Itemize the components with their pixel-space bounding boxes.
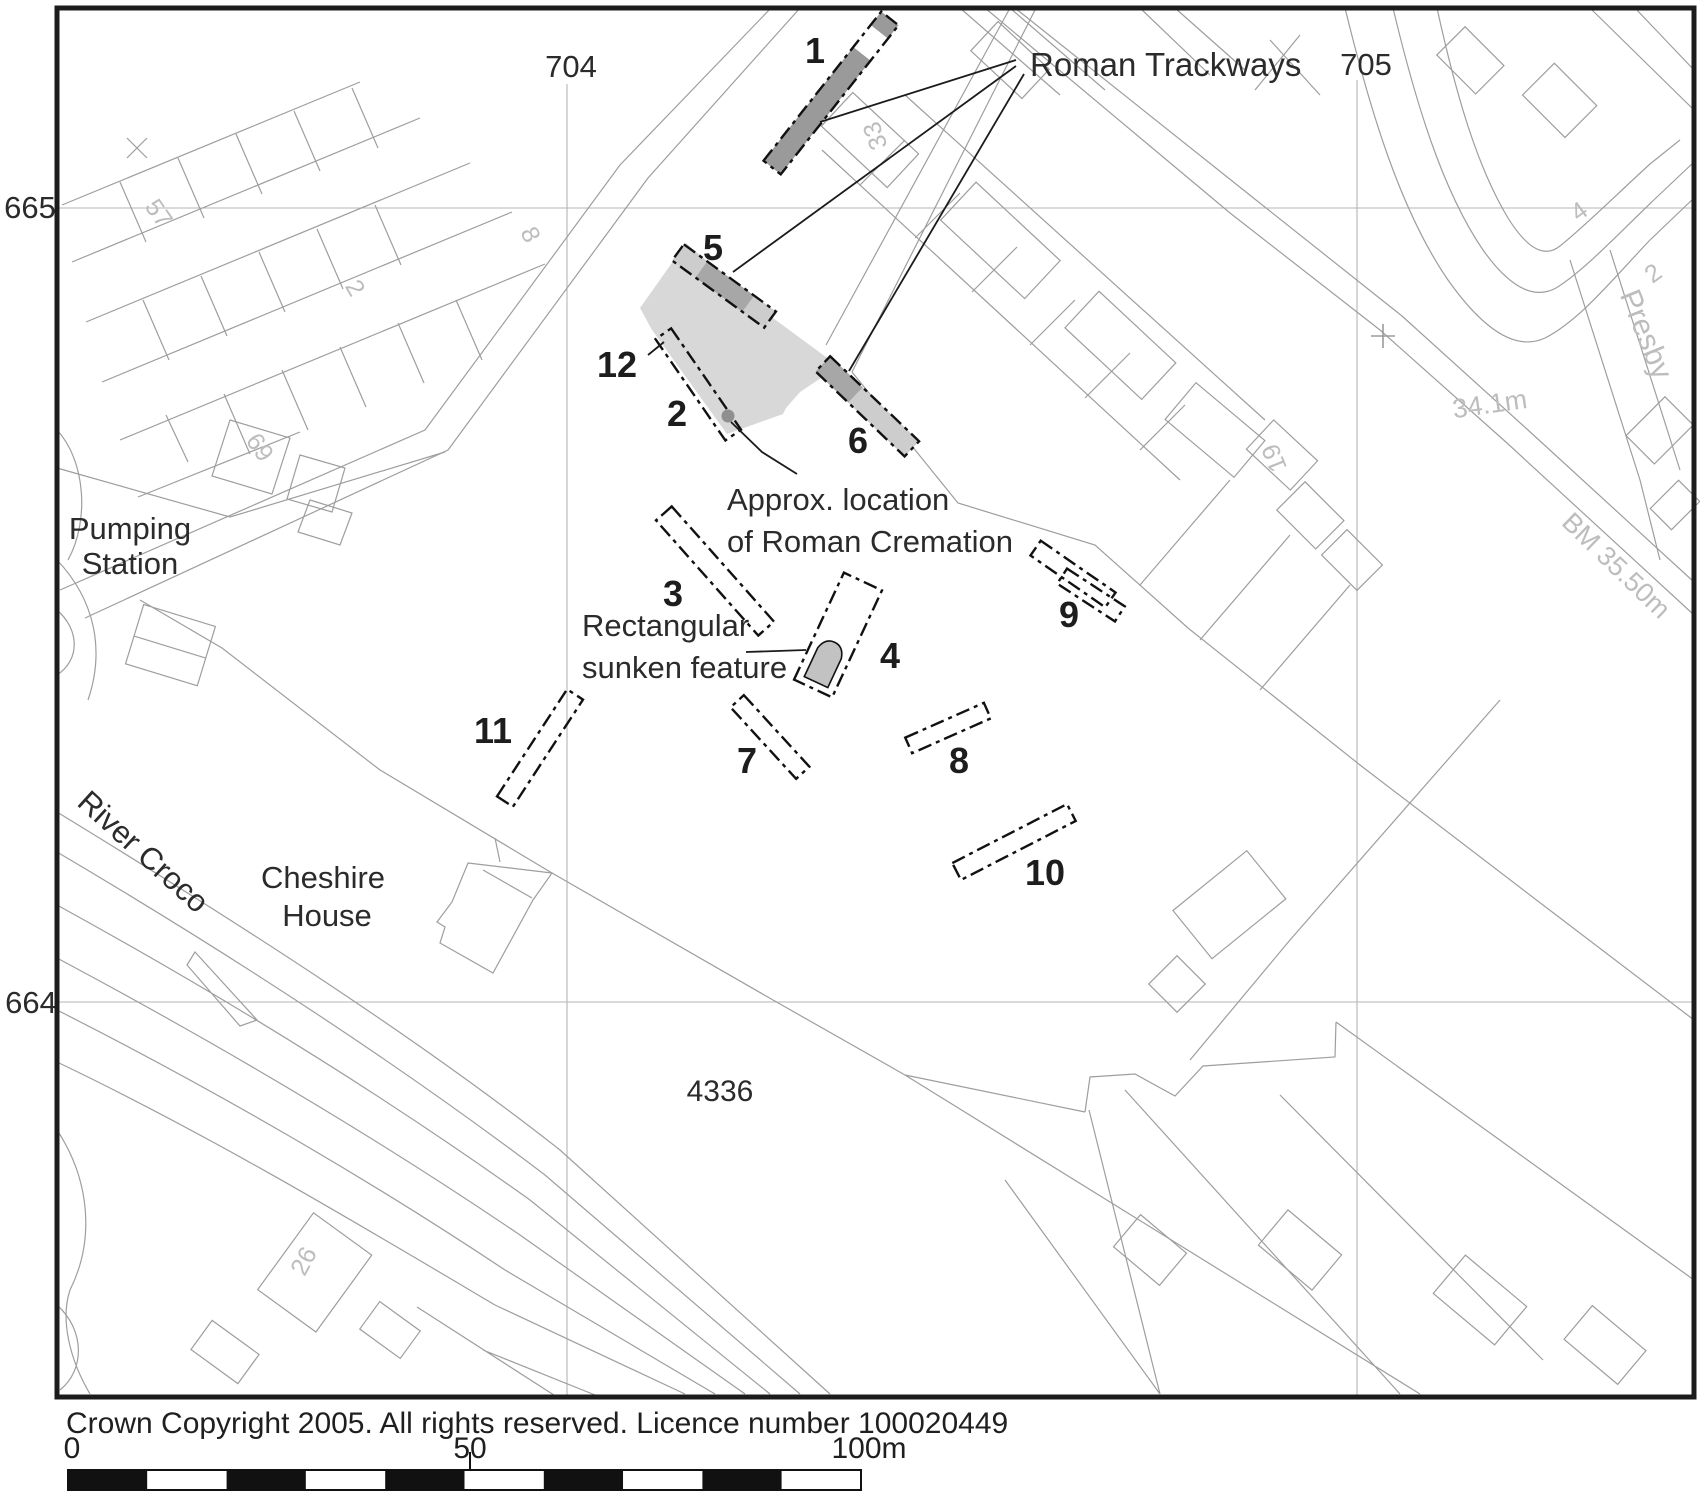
easting-705: 705 xyxy=(1340,47,1392,82)
trench-label-2: 2 xyxy=(667,393,687,434)
map-frame xyxy=(57,8,1694,1397)
northing-664: 664 xyxy=(5,985,57,1020)
sunken-label-line2: sunken feature xyxy=(582,650,787,685)
pumping-station-line2: Station xyxy=(82,546,179,581)
easting-704: 704 xyxy=(545,49,597,84)
river-croco-label: River Croco xyxy=(71,784,216,920)
trench-label-9: 9 xyxy=(1059,594,1079,635)
trench-4 xyxy=(794,573,882,698)
site-plan-figure: 57 69 2 8 33 19 4 2 26 Presby 34.1m BM 3… xyxy=(0,0,1700,1498)
label-19: 19 xyxy=(1256,440,1292,476)
buildings xyxy=(126,22,1700,1385)
leader-trackway-6 xyxy=(849,74,1024,371)
label-8: 8 xyxy=(515,222,546,246)
house-number-labels: 57 69 2 8 33 19 4 2 26 Presby 34.1m BM 3… xyxy=(139,118,1678,1280)
trench-label-10: 10 xyxy=(1025,852,1065,893)
cremation-spot xyxy=(722,410,735,423)
label-4: 4 xyxy=(1565,196,1593,227)
trench-label-5: 5 xyxy=(703,227,723,268)
trench-label-4: 4 xyxy=(880,635,900,676)
map-linework xyxy=(57,8,1694,1397)
cremation-label-line1: Approx. location xyxy=(727,482,949,517)
trench-label-11: 11 xyxy=(474,710,512,751)
northing-665: 665 xyxy=(4,190,56,225)
footer: Crown Copyright 2005. All rights reserve… xyxy=(64,1407,1009,1490)
label-57: 57 xyxy=(139,194,178,233)
scale-label-0: 0 xyxy=(64,1432,81,1465)
label-33: 33 xyxy=(858,118,894,154)
cheshire-label-line2: House xyxy=(282,898,372,933)
parcel-4336-label: 4336 xyxy=(687,1075,754,1108)
cheshire-house-building xyxy=(437,863,552,973)
trench-label-3: 3 xyxy=(663,573,683,614)
label-2-terrace: 2 xyxy=(339,275,370,301)
scale-label-100m: 100m xyxy=(831,1432,906,1465)
pumping-station-line1: Pumping xyxy=(69,511,191,546)
roman-trackways-label: Roman Trackways xyxy=(1030,46,1301,83)
label-69: 69 xyxy=(240,428,279,467)
grid-cross-icon xyxy=(1371,324,1395,348)
label-presby: Presby xyxy=(1613,285,1679,384)
annotations: Roman Trackways Approx. location of Roma… xyxy=(69,46,1302,1108)
trenches xyxy=(497,12,1125,880)
trench-label-1: 1 xyxy=(805,30,825,71)
grid-lines xyxy=(57,80,1694,1395)
trench-label-7: 7 xyxy=(737,740,757,781)
trench-label-6: 6 xyxy=(848,420,868,461)
cheshire-label-line1: Cheshire xyxy=(261,860,385,895)
trench-label-8: 8 xyxy=(949,740,969,781)
map-canvas: 57 69 2 8 33 19 4 2 26 Presby 34.1m BM 3… xyxy=(0,0,1700,1498)
label-26: 26 xyxy=(285,1242,323,1280)
trench-label-12: 12 xyxy=(597,344,637,385)
label-benchmark: BM 35.50m xyxy=(1556,507,1676,624)
cremation-label-line2: of Roman Cremation xyxy=(727,524,1013,559)
label-spot-height: 34.1m xyxy=(1451,384,1529,424)
